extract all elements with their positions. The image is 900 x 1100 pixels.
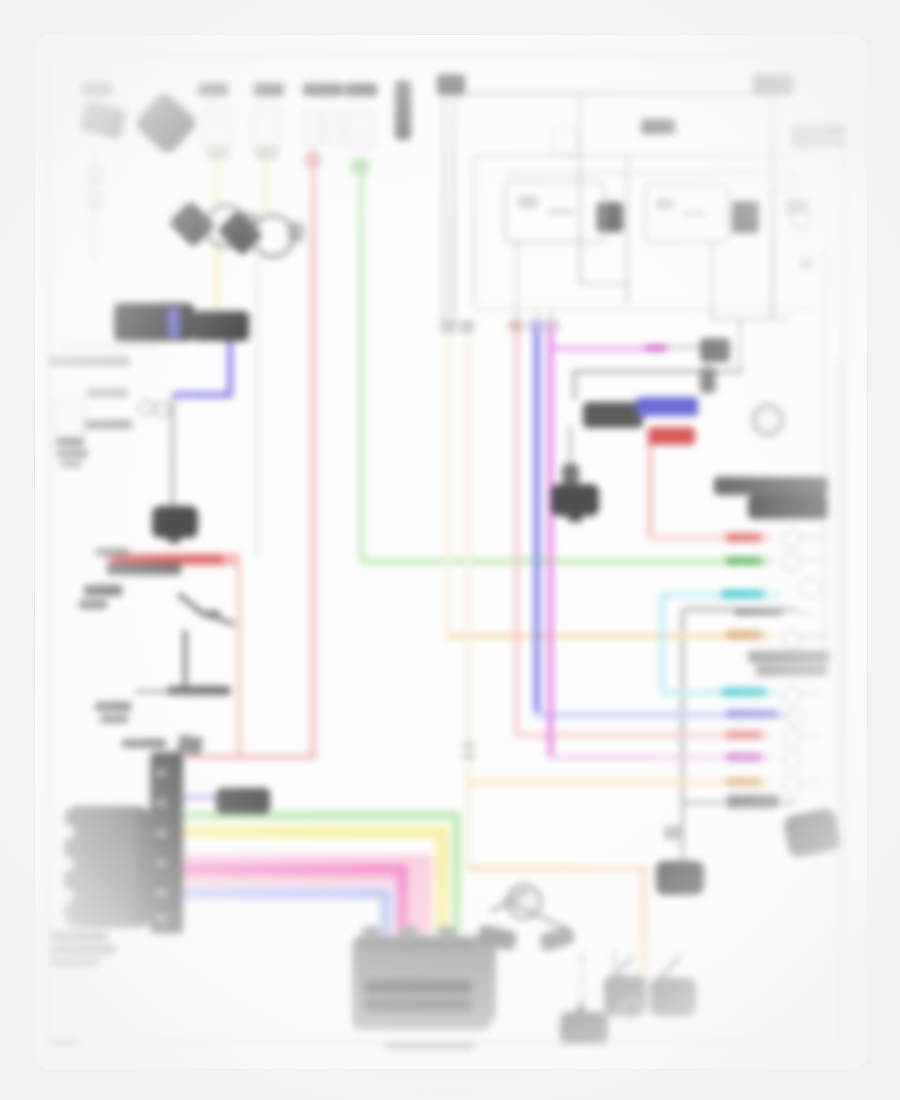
band-magenta-h bbox=[182, 864, 406, 875]
motor-bracket-side bbox=[573, 372, 576, 400]
ground-symbol-mid-stem bbox=[568, 514, 582, 522]
top-right-dark-2 bbox=[832, 139, 845, 146]
orange-wire-1-h bbox=[446, 633, 772, 639]
relay1-output-stub bbox=[516, 240, 518, 328]
relay-box-left bbox=[473, 155, 475, 305]
junction-connector-left bbox=[114, 303, 194, 341]
pin-ring-692 bbox=[782, 686, 801, 705]
orange-wire-1-seg bbox=[726, 631, 762, 639]
orange-wire-2-seg bbox=[726, 778, 762, 786]
connector-mark-red bbox=[304, 152, 322, 168]
connector-mark-yellow-1 bbox=[206, 146, 230, 160]
pin-stub-610 bbox=[797, 612, 813, 614]
fusible-link-tick-b bbox=[462, 755, 475, 758]
pin-stub-560 bbox=[798, 559, 824, 561]
strip-pin-5 bbox=[157, 890, 166, 896]
right-block-row-2 bbox=[748, 495, 828, 519]
right-light-row-2 bbox=[756, 665, 828, 676]
violet-elbow-h bbox=[172, 392, 232, 398]
left-dash-3 bbox=[60, 461, 82, 467]
label-int-1 bbox=[95, 702, 131, 711]
cream-wire-1-v bbox=[446, 328, 451, 635]
bottom-module-top bbox=[358, 940, 474, 950]
wiring-diagram-canvas bbox=[0, 0, 900, 1100]
fuse-symbol-4b bbox=[323, 110, 343, 144]
switch-label-row-2 bbox=[51, 945, 115, 954]
page-code bbox=[50, 1039, 78, 1046]
pin-stub-692 bbox=[798, 692, 822, 694]
fuse-symbol-3 bbox=[252, 108, 282, 148]
red-wire-2-v bbox=[515, 330, 518, 735]
battery-label-right bbox=[753, 74, 793, 95]
battery-feed-left-b bbox=[453, 95, 455, 328]
white-wire-ghost bbox=[256, 258, 259, 558]
green-wire-label-seg bbox=[726, 557, 762, 565]
right-bus-line-a bbox=[824, 250, 826, 662]
magenta-wire-v bbox=[548, 330, 553, 757]
connector-mark-yellow-2 bbox=[254, 146, 278, 160]
left-outline-component bbox=[54, 400, 86, 436]
bottom-module-bump-1 bbox=[362, 926, 380, 938]
label-smudge-b bbox=[84, 420, 132, 429]
magenta-wire-seg bbox=[726, 753, 762, 761]
cream-wire-2-v bbox=[466, 328, 471, 870]
right-bus-line-b bbox=[837, 360, 839, 1043]
cyan-wire-seg1 bbox=[722, 590, 764, 598]
right-block-row-1 bbox=[714, 477, 828, 495]
wiper-switch-notch-3 bbox=[58, 888, 74, 904]
band-yellow-h bbox=[182, 826, 448, 838]
relay2-pin-label bbox=[732, 201, 759, 233]
pin-ring-714 bbox=[786, 708, 805, 727]
connector-ring-2 bbox=[154, 401, 171, 418]
junction-connector-right bbox=[193, 311, 249, 341]
battery-label-left bbox=[437, 74, 465, 95]
strip-pin-2 bbox=[157, 800, 166, 806]
left-branch-h bbox=[58, 345, 158, 347]
splice-label bbox=[95, 548, 129, 556]
bottom-module-ext bbox=[474, 940, 496, 1020]
pin-stub-735 bbox=[798, 735, 820, 737]
gray-wire-label-blob bbox=[727, 795, 779, 808]
lavender-switch-wire bbox=[182, 795, 218, 800]
label-smudge-d bbox=[79, 600, 107, 609]
ground-symbol-left bbox=[152, 506, 198, 538]
pin-ring-585 bbox=[800, 578, 821, 599]
band-periwinkle-v bbox=[380, 888, 392, 940]
splice-bar-text bbox=[107, 563, 181, 575]
fuse-arrow-large bbox=[133, 90, 199, 156]
relay-2-contact bbox=[682, 212, 706, 215]
right-light-row-1 bbox=[748, 651, 830, 663]
bottom-caption bbox=[386, 1042, 474, 1050]
fuse-symbol-5 bbox=[345, 110, 375, 148]
page-background: { "meta": { "kind": "blurred automotive … bbox=[0, 0, 900, 1100]
pin-stub-637 bbox=[798, 636, 824, 638]
label-smudge-c bbox=[84, 585, 122, 596]
washer-arm-blob-2 bbox=[538, 925, 576, 953]
relay-feed-v3 bbox=[711, 240, 713, 320]
wiper-motor-blue-seg bbox=[636, 397, 698, 416]
green-wire-h bbox=[359, 558, 773, 564]
washer-motor-right-arm bbox=[659, 955, 681, 979]
label-smudge-a bbox=[86, 389, 128, 397]
orange-wire-3-v bbox=[642, 866, 646, 978]
bottom-module-row-2 bbox=[364, 998, 472, 1012]
top-right-tiny bbox=[800, 259, 813, 268]
top-right-polygon bbox=[791, 124, 831, 148]
wiper-switch-notch-1 bbox=[58, 824, 74, 840]
ground-symbol-mid bbox=[551, 484, 599, 516]
relay-box-top bbox=[473, 155, 818, 157]
green-wire-v bbox=[359, 158, 363, 560]
left-branch-v bbox=[93, 210, 95, 260]
washer-motor-left-ring bbox=[620, 998, 642, 1020]
label-smudge-fuseblock bbox=[50, 357, 130, 366]
blue-connector-mark bbox=[529, 320, 543, 332]
washer-dashed-2 bbox=[581, 972, 583, 985]
blue-wire-v bbox=[534, 330, 540, 714]
relay-inner-rail bbox=[505, 172, 763, 174]
bottom-module-bump-2 bbox=[400, 926, 418, 938]
diagram-frame-right bbox=[843, 54, 845, 1044]
switch-arm-mark bbox=[206, 610, 220, 619]
magenta-branch-target bbox=[700, 338, 730, 362]
top-power-bus bbox=[455, 92, 775, 95]
red-wire-3-v bbox=[648, 443, 652, 537]
wiper-switch-notch-2 bbox=[58, 856, 74, 872]
fuse-symbol-2 bbox=[202, 108, 232, 148]
cyan-wire-v bbox=[660, 592, 665, 692]
connector-mark-green bbox=[350, 158, 370, 174]
wiper-motor-label-blob bbox=[583, 402, 643, 428]
right-dark-curl bbox=[782, 807, 842, 859]
relay-box-bottom bbox=[473, 308, 818, 310]
switch-label-row-3 bbox=[51, 958, 99, 966]
right-junction-v bbox=[739, 320, 741, 370]
tall-component-mark bbox=[395, 80, 411, 140]
red-wire-2-seg bbox=[726, 731, 762, 739]
blue-wire-seg bbox=[726, 710, 778, 718]
fusible-link-tick-a bbox=[462, 744, 475, 747]
pin-ring-757 bbox=[782, 751, 801, 770]
cream-connector-mark-1 bbox=[440, 320, 456, 333]
battery-feed-right bbox=[771, 95, 774, 320]
top-small-box bbox=[552, 128, 578, 154]
left-dash-2 bbox=[56, 450, 88, 457]
bottom-module-bump-3 bbox=[438, 926, 456, 938]
right-junction-h bbox=[711, 318, 791, 320]
ground-lead-left bbox=[171, 398, 174, 508]
fuse-label-4 bbox=[303, 83, 343, 96]
strip-pin-3 bbox=[157, 830, 166, 836]
washer-motor-right bbox=[650, 978, 696, 1016]
switch-side-label-blob bbox=[216, 788, 270, 814]
wiper-motor-stub bbox=[700, 367, 716, 393]
wiper-switch-edge bbox=[136, 810, 154, 924]
junction-connector-violet-pin bbox=[168, 308, 180, 338]
band-periwinkle-h bbox=[182, 888, 392, 899]
red-wire-main-v bbox=[311, 148, 315, 758]
battery-feed-left-a bbox=[443, 95, 445, 328]
red-wire-branch-v bbox=[238, 565, 241, 757]
ipdm-label bbox=[641, 119, 675, 134]
band-green-v bbox=[453, 812, 460, 940]
violet-elbow-v bbox=[227, 338, 233, 396]
switch-label-row-1 bbox=[51, 932, 107, 941]
bottom-module-row-1 bbox=[364, 980, 472, 994]
washer-dashed-1 bbox=[581, 953, 583, 966]
top-right-dark-1 bbox=[828, 126, 845, 135]
fuse-label-1 bbox=[82, 83, 112, 96]
fuse-label-5 bbox=[345, 83, 377, 96]
pin-ring-735 bbox=[782, 729, 801, 748]
diode-2-tail bbox=[288, 222, 304, 242]
relay-feed-v2 bbox=[626, 155, 628, 303]
pin-ring-782 bbox=[782, 776, 801, 795]
connector-ring-1 bbox=[138, 399, 155, 416]
motor-m-circle bbox=[752, 404, 784, 436]
diagram-frame-top bbox=[48, 54, 844, 56]
fuse-label-2 bbox=[198, 83, 228, 96]
top-right-box bbox=[772, 171, 796, 191]
pin-stub-537 bbox=[798, 536, 824, 538]
switch-contact-bar bbox=[168, 686, 230, 695]
wiper-motor-red-seg bbox=[648, 427, 695, 445]
relay-1-contact bbox=[548, 210, 574, 213]
relay-mid-link bbox=[579, 283, 627, 285]
red-wire-3-seg bbox=[726, 533, 762, 542]
switch-connector-strip bbox=[150, 752, 183, 934]
pin-ring-560 bbox=[782, 553, 801, 572]
red2-connector-mark bbox=[509, 320, 523, 332]
pin-ring-637 bbox=[782, 630, 801, 649]
gray-wire-connector-mark bbox=[664, 826, 682, 840]
ground-symbol-bottom-stem bbox=[577, 1004, 585, 1014]
red-wire-connector-h bbox=[168, 755, 316, 759]
fuse-label-3 bbox=[254, 83, 284, 96]
relay-1-coil bbox=[518, 196, 538, 208]
gray-wire-seg bbox=[734, 609, 782, 615]
magenta-connector-mark bbox=[545, 320, 559, 332]
cyan-wire-seg2 bbox=[722, 688, 766, 696]
motor-stalk-mark bbox=[562, 464, 579, 484]
magenta-branch-stub bbox=[667, 346, 702, 348]
left-pin-square-1 bbox=[87, 168, 102, 183]
ground-symbol-right bbox=[656, 861, 704, 895]
left-dash-1 bbox=[56, 438, 84, 446]
label-row-mid bbox=[122, 739, 166, 748]
relay-2-coil bbox=[656, 198, 674, 210]
strip-pin-4 bbox=[157, 860, 166, 866]
cream-connector-mark-2 bbox=[459, 320, 475, 333]
diagram-frame-left bbox=[48, 54, 50, 1044]
strip-pin-1 bbox=[157, 770, 166, 776]
yellow-wire-lower bbox=[215, 245, 219, 307]
fuse-symbol-4a bbox=[303, 110, 323, 144]
ground-symbol-left-stem bbox=[168, 536, 180, 543]
switch-arm-shaft bbox=[183, 630, 187, 688]
orange-wire-3-h bbox=[466, 866, 646, 871]
motor-bracket-top bbox=[573, 370, 743, 373]
top-right-ring bbox=[790, 208, 811, 229]
pin-ring-537 bbox=[782, 530, 801, 549]
magenta-branch-seg bbox=[645, 345, 667, 351]
left-pin-square-2 bbox=[87, 192, 102, 207]
ground-symbol-bottom bbox=[560, 1012, 608, 1044]
strip-pin-6 bbox=[157, 915, 166, 921]
pin-stub-782 bbox=[798, 781, 824, 783]
fuse-arrow-small bbox=[79, 101, 126, 139]
washer-dashed-3 bbox=[581, 991, 583, 1004]
label-int-2 bbox=[100, 715, 128, 723]
band-yellow-v bbox=[436, 826, 448, 940]
